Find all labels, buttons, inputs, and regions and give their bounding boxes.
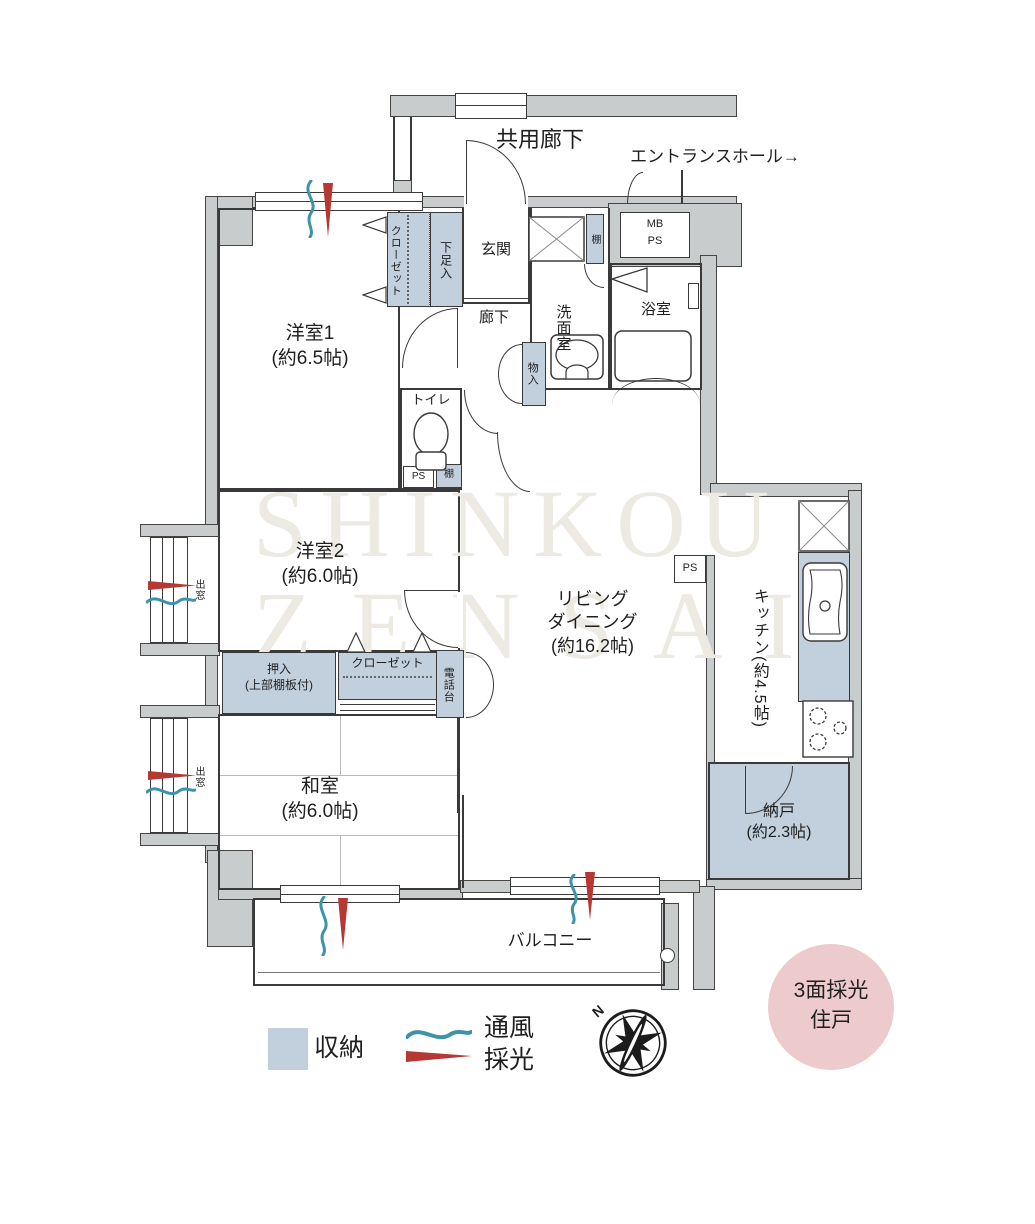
western1-door-arc	[402, 308, 458, 368]
western2-label: 洋室2 (約6.0帖)	[240, 540, 400, 589]
mbps-label: MB PS	[620, 216, 690, 249]
bay1-bottom-stub	[140, 643, 220, 656]
kitchen-label: キッチン(約4.5帖)	[748, 540, 769, 775]
japanese-label: 和室 (約6.0帖)	[240, 775, 400, 824]
balcony-drain	[660, 948, 675, 963]
bathtub-icon	[614, 330, 692, 382]
monoire-door-arc	[498, 344, 522, 374]
western1-label: 洋室1 (約6.5帖)	[230, 322, 390, 371]
daylight-arrow-icon	[337, 898, 349, 950]
floor-plan: SHINKOU ZENSAI	[0, 0, 1035, 1224]
legend-vent-label: 通風	[484, 1012, 564, 1045]
sliding-door-panel	[457, 718, 459, 813]
legend-storage-label: 収納	[314, 1032, 404, 1065]
daylight-arrow-icon	[322, 183, 334, 237]
shoebox-label: 下足入	[437, 224, 453, 296]
vent-wave-icon	[303, 180, 319, 238]
tatami-line	[340, 716, 341, 775]
washroom-label: 洗面室	[553, 268, 573, 388]
living-dining-label: リビング ダイニング (約16.2帖)	[505, 588, 680, 658]
daylight-arrow-icon	[584, 872, 596, 920]
closet2-shelf-line	[340, 710, 435, 711]
monoire-label: 物入	[525, 352, 539, 396]
bay2-top-stub	[140, 705, 220, 718]
hallway-label: 廊下	[462, 308, 526, 328]
tatami-line	[220, 835, 458, 836]
sliding-door-panel	[462, 795, 464, 888]
bay-window2-label: 出窓	[192, 752, 205, 802]
legend-daylight-label: 採光	[484, 1044, 564, 1077]
washroom-shelf-label: 棚	[588, 228, 601, 250]
entrance-hall-label: エントランスホール→	[600, 146, 830, 168]
daylight-badge-label: 3面採光 住戸	[768, 976, 894, 1037]
entrance-hall-leader-curve	[627, 172, 643, 204]
outer-wall-bottom-right	[693, 886, 715, 990]
vent-wave-icon	[566, 874, 582, 924]
entrance-step-line	[463, 298, 529, 299]
phone-stand-label: 電話台	[441, 658, 455, 712]
washroom-xbox-icon	[528, 216, 585, 262]
bay2-bottom-stub	[140, 833, 220, 846]
toilet-icon	[410, 410, 452, 474]
closet2-label: クローゼット	[338, 656, 437, 672]
left-wall-upper	[205, 196, 218, 526]
legend-vent-wave-icon	[406, 1026, 472, 1044]
closet2-rail	[343, 676, 432, 678]
vent-wave-icon	[316, 896, 332, 956]
toilet-ps-label: PS	[403, 470, 434, 483]
right-wall	[848, 490, 862, 890]
balcony-floor-line	[258, 972, 660, 973]
bathroom-label: 浴室	[612, 300, 700, 320]
legend-daylight-arrow-icon	[406, 1050, 472, 1063]
balcony-label: バルコニー	[470, 930, 630, 952]
compass-icon	[598, 1008, 668, 1078]
fold-mark-icon	[346, 632, 366, 654]
kitchen-ps-label: PS	[674, 561, 706, 575]
daylight-arrow-icon	[148, 770, 196, 781]
phone-stand-door-arc	[466, 685, 494, 718]
kitchen-sink-icon	[802, 562, 848, 642]
bay-window1-label: 出窓	[192, 565, 205, 615]
toilet-label: トイレ	[402, 392, 460, 409]
kitchen-xbox-icon	[798, 500, 850, 552]
corridor-top-wall	[390, 95, 737, 117]
closet1-rail	[407, 215, 409, 304]
entrance-step-line	[463, 303, 529, 304]
stove-icon	[802, 700, 854, 758]
tatami-line	[340, 835, 341, 888]
daylight-arrow-icon	[148, 580, 196, 591]
bay1-top-stub	[140, 524, 220, 537]
fold-mark-icon	[362, 216, 388, 234]
oshiire-label: 押入 (上部棚板付)	[222, 662, 336, 693]
entrance-label: 玄関	[462, 240, 530, 260]
folding-door-icon	[611, 266, 651, 296]
toilet-shelf-label: 棚	[436, 468, 462, 481]
western1-top-window	[255, 192, 423, 211]
vent-wave-icon	[146, 784, 196, 799]
entrance-hall-leader-line	[681, 170, 683, 204]
closet2-shelf-line	[340, 704, 435, 705]
corridor-window	[455, 93, 527, 119]
closet1-label: クローゼット	[388, 218, 402, 304]
bathroom-right-wall	[700, 255, 717, 495]
legend-storage-swatch	[268, 1028, 308, 1070]
toilet-door-arc	[464, 390, 498, 434]
fold-mark-icon	[362, 286, 388, 304]
vent-wave-icon	[146, 594, 196, 609]
monoire-door-arc	[498, 374, 522, 404]
storeroom-label: 納戸 (約2.3帖)	[712, 802, 846, 844]
